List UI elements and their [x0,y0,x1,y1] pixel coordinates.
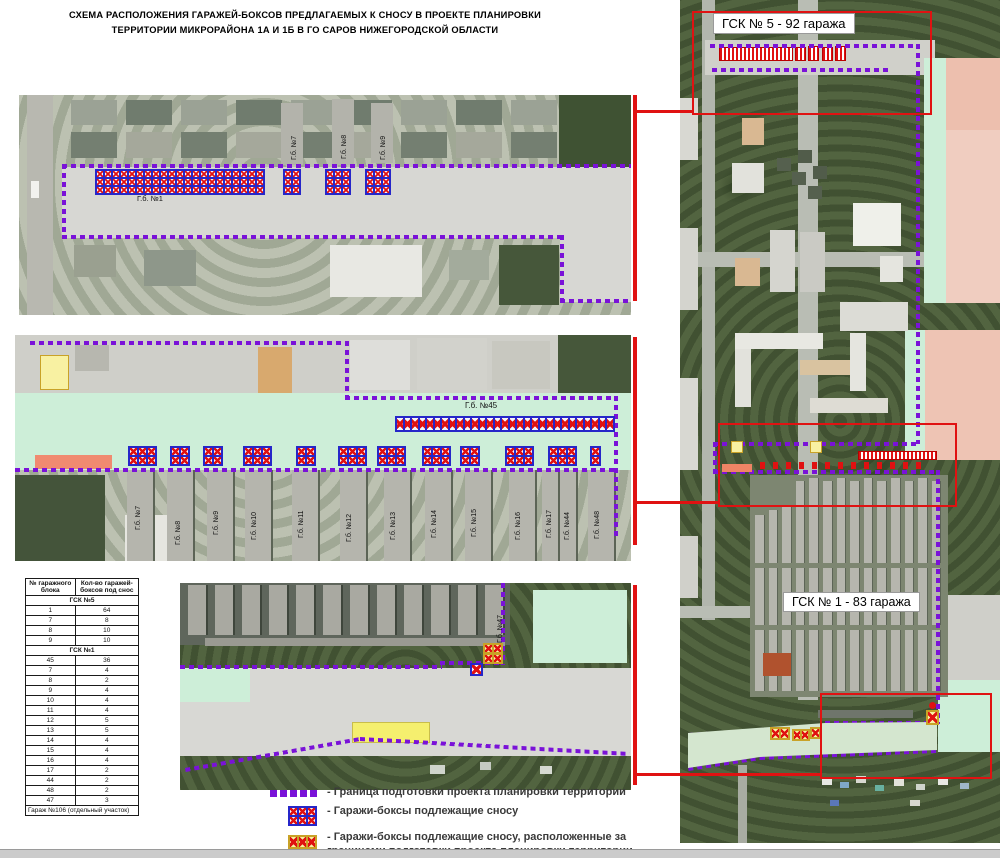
garage-box-cell [128,170,136,178]
forest-patch [15,475,105,561]
building [732,163,764,193]
callout-connector-middle-horizontal [637,501,719,504]
building [511,100,557,125]
building [875,785,884,791]
building [480,762,491,770]
garage-box-cell [176,186,184,194]
garage-box-cell [248,170,256,178]
garage-boxes-demolish [325,169,351,195]
legend-swatch-boundary [243,786,327,797]
garage-box-cell [160,186,168,194]
building [840,302,908,331]
callout-connector-top-horizontal [637,110,693,113]
garage-box-cell [567,456,576,465]
title-line-1: СХЕМА РАСПОЛОЖЕНИЯ ГАРАЖЕЙ-БОКСОВ ПРЕДЛА… [20,10,590,20]
garage-box-cell [240,178,248,186]
garage-box-cell [441,447,450,456]
boundary-dashed-line [345,341,349,396]
garage-box-cell [200,170,208,178]
garage-boxes-demolish [505,446,534,466]
lane [750,625,948,630]
garage-box-cell [811,728,820,738]
garage-block-label: Г.б. №9 [213,511,220,535]
garage-boxes-outside-boundary [288,835,317,849]
boundary-dashed-line [180,665,442,669]
building [680,228,698,310]
garage-block-building [377,585,397,635]
garage-block-building [245,470,273,561]
garage-box-cell [298,816,307,825]
table-cell: 1 [26,606,76,616]
garage-box-cell [200,186,208,194]
building [770,230,795,292]
garage-box-cell [297,456,306,465]
building [126,100,172,125]
building [449,250,489,280]
garage-box-cell [184,170,192,178]
table-cell: 10 [75,626,138,636]
garage-box-cell [411,417,419,431]
boundary-dashed-line [713,442,717,472]
garage-box-cell [129,447,138,456]
garage-block-building [465,470,493,561]
garage-block-building [269,585,289,635]
table-cell: 2 [75,786,138,796]
legend-swatch-demolish [243,805,327,826]
garage-box-cell [461,456,470,465]
garage-box-cell [591,456,600,465]
table-cell: 2 [75,776,138,786]
garage-boxes-demolish [590,446,601,466]
garage-box-cell [96,186,104,194]
building [492,341,550,389]
table-cell: 2 [75,676,138,686]
garage-box-cell [591,447,600,456]
garage-box-cell [160,170,168,178]
garage-box-cell [213,456,222,465]
planned-zone-salmon [946,58,1000,130]
garage-box-cell [524,447,533,456]
garage-block-label: Г.б. №7 [291,136,298,160]
garage-box-cell [366,186,374,194]
garage-box-cell [348,456,357,465]
table-cell: 14 [26,736,76,746]
forest-patch [559,95,631,170]
garage-block-building [350,585,370,635]
garage-block-label: Г.б. №12 [346,514,353,542]
table-cell: 3 [75,796,138,806]
table-cell: ГСК №1 [26,646,139,656]
garage-box-cell [253,447,262,456]
building [126,132,172,158]
legend-item-text: - Граница подготовки проекта планировки … [327,786,657,800]
garage-box-cell [192,178,200,186]
garage-box-cell [216,178,224,186]
garage-box-cell [426,417,434,431]
garage-box-cell [334,178,342,186]
garage-box-cell [441,456,450,465]
garage-box-cell [144,170,152,178]
garage-box-cell [366,170,374,178]
garage-block-label: Г.б. №16 [515,512,522,540]
garage-box-cell [404,417,412,431]
garage-box-cell [387,456,396,465]
boundary-dash-sample [270,790,277,797]
garage-box-cell [461,447,470,456]
building [830,800,839,806]
building [680,536,698,598]
table-cell: Гараж №106 (отдельный участок) [26,806,139,816]
garage-box-cell [152,170,160,178]
boundary-dash-sample [300,790,307,797]
garage-box-cell [524,456,533,465]
garage-block-label: Г.б. №17 [546,510,553,538]
garage-box-cell [120,170,128,178]
garage-box-cell [171,447,180,456]
building [456,100,502,125]
boundary-dashed-line [614,396,618,540]
building [19,245,59,315]
forest-patch [558,335,631,395]
garage-box-cell [506,447,515,456]
garage-box-cell [248,186,256,194]
boundary-dashed-line [15,468,614,472]
garage-box-cell [423,456,432,465]
garage-box-cell [297,447,306,456]
building [417,338,487,390]
garage-box-cell [104,186,112,194]
garage-box-cell [334,186,342,194]
legend: - Граница подготовки проекта планировки … [243,786,673,858]
garage-box-cell [307,836,316,848]
title-line-2: ТЕРРИТОРИИ МИКРОРАЙОНА 1А И 1Б В ГО САРО… [20,25,590,35]
garage-block-building [425,470,453,561]
building [840,782,849,788]
garage-boxes-demolish [170,446,190,466]
garage-block-building [588,470,616,561]
project-area-fill [560,238,631,302]
building [792,172,806,185]
garage-box-cell [342,186,350,194]
garage-box-cell [176,178,184,186]
garage-boxes-demolish [338,446,367,466]
garage-box-cell [168,170,176,178]
garage-box-cell [240,186,248,194]
garage-box-cell [326,170,334,178]
garage-box-cell [213,447,222,456]
garage-box-cell [470,447,479,456]
garage-box-cell [423,447,432,456]
garage-box-cell [216,170,224,178]
garage-box-cell [192,186,200,194]
garage-boxes-demolish [460,446,480,466]
garage-count-table: № гаражного блокаКол-во гаражей-боксов п… [25,578,139,816]
table-cell: 4 [75,666,138,676]
garage-box-cell [441,417,449,431]
garage-box-cell [471,664,482,675]
garage-boxes-outside-boundary [483,653,503,664]
garage-box-cell [284,170,292,178]
table-cell: 11 [26,706,76,716]
planned-zone-salmon [35,455,112,469]
table-cell: 5 [75,716,138,726]
garage-box-cell [180,447,189,456]
garage-boxes-demolish [470,663,483,676]
garage-boxes-demolish [395,416,615,432]
garage-box-cell [531,417,539,431]
garage-box-cell [599,417,607,431]
garage-box-cell [112,170,120,178]
garage-box-cell [374,170,382,178]
garage-box-cell [539,417,547,431]
garage-boxes-demolish [548,446,577,466]
garage-box-cell [464,417,472,431]
garage-box-cell [306,447,315,456]
garage-box-cell [244,456,253,465]
building [456,132,502,158]
table-cell: 4 [75,746,138,756]
garage-box-cell [104,178,112,186]
building [144,250,196,286]
garage-box-cell [128,178,136,186]
garage-box-cell [248,178,256,186]
garage-box-cell [494,417,502,431]
satellite-panel-middle-left: Г.б. №45Г.б. №7Г.б. №8Г.б. №9Г.б. №10Г.б… [15,335,631,561]
garage-box-cell [289,816,298,825]
garage-box-cell [292,170,300,178]
garage-box-cell [298,807,307,816]
garage-block-building [296,585,316,635]
garage-block-building [404,585,424,635]
garage-box-cell [112,178,120,186]
satellite-panel-bottom-middle: Г.б. №47 [180,583,631,790]
boundary-dashed-line [30,341,345,345]
table-cell: 44 [26,776,76,786]
building [735,333,823,349]
garage-box-cell [334,170,342,178]
garage-block-building [850,481,860,691]
building [894,779,904,786]
wall [205,638,505,646]
vehicle [31,181,39,198]
table-cell: 10 [26,696,76,706]
garage-box-cell [801,730,809,740]
garage-box-cell [471,417,479,431]
page-title: СХЕМА РАСПОЛОЖЕНИЯ ГАРАЖЕЙ-БОКСОВ ПРЕДЛА… [20,10,590,35]
garage-box-cell [284,178,292,186]
callout-connector-top-vertical [633,95,637,301]
table-cell: 5 [75,726,138,736]
garage-boxes-demolish [377,446,406,466]
garage-boxes-demolish [296,446,316,466]
building [350,340,410,390]
table-cell: 10 [75,636,138,646]
garage-box-cell [584,417,592,431]
table-cell: ГСК №5 [26,596,139,606]
garage-box-cell [152,186,160,194]
garage-boxes-demolish [365,169,391,195]
garage-block-building [215,585,235,635]
garage-box-cell [128,186,136,194]
table-cell: 15 [26,746,76,756]
garage-block-building [509,470,537,561]
building [810,398,888,413]
garage-box-cell [793,730,801,740]
garage-block-label: Г.б. №47 [497,615,504,643]
table-cell: 17 [26,766,76,776]
garage-block-label: Г.б. №10 [251,512,258,540]
building [960,783,969,789]
garage-box-cell [396,447,405,456]
table-cell: 45 [26,656,76,666]
building [430,765,445,774]
garage-box-cell [484,654,493,663]
garage-box-cell [262,447,271,456]
garage-block-building [877,481,887,691]
table-cell: 9 [26,636,76,646]
garage-box-cell [591,417,599,431]
garage-box-cell [493,644,502,653]
garage-box-cell [184,186,192,194]
garage-box-cell [184,178,192,186]
building [401,100,447,125]
building [938,778,948,785]
garage-box-cell [554,417,562,431]
garage-box-cell [449,417,457,431]
garage-box-cell [256,186,264,194]
callout-label-gsk1: ГСК № 1 - 83 гаража [783,592,920,612]
garage-block-label: Г.б. №45 [465,401,497,410]
table-cell: 8 [26,676,76,686]
garage-box-cell [136,178,144,186]
building [763,653,791,676]
garage-box-cell [256,170,264,178]
garage-box-cell [232,186,240,194]
garage-block-label: Г.б. №15 [471,509,478,537]
table-cell: 36 [75,656,138,666]
building [330,245,422,297]
garage-box-cell [339,456,348,465]
garage-boxes-demolish [128,446,157,466]
table-cell: 9 [26,686,76,696]
building [910,800,920,806]
building [735,349,751,407]
garage-box-cell [374,186,382,194]
building [511,132,557,158]
boundary-dashed-line [936,470,940,724]
garage-block-label: Г.б. №8 [175,521,182,545]
lane [750,563,948,568]
building [499,245,559,305]
table-cell: 4 [75,736,138,746]
garage-box-cell [348,447,357,456]
garage-box-cell [357,447,366,456]
scheme-page: СХЕМА РАСПОЛОЖЕНИЯ ГАРАЖЕЙ-БОКСОВ ПРЕДЛА… [0,0,1000,858]
garage-box-cell [120,178,128,186]
garage-box-cell [382,170,390,178]
boundary-dashed-line [560,299,631,303]
building [236,132,282,158]
garage-box-cell [434,417,442,431]
garage-box-cell [256,178,264,186]
garage-block-building [796,481,806,691]
garage-box-cell [216,186,224,194]
table-cell: 48 [26,786,76,796]
garage-box-cell [576,417,584,431]
garage-box-cell [204,456,213,465]
garage-box-cell [378,447,387,456]
garage-box-cell [306,456,315,465]
garage-box-cell [298,836,307,848]
garage-box-cell [144,178,152,186]
garage-box-cell [484,644,493,653]
table-cell: 4 [75,696,138,706]
garage-block-building [905,481,915,691]
garage-boxes-demolish [95,169,265,195]
garage-block-label: Г.б. №48 [594,511,601,539]
road [738,765,747,843]
garage-box-cell [419,417,427,431]
building [808,186,822,199]
garage-box-cell [506,456,515,465]
garage-box-cell [240,170,248,178]
garage-box-cell [479,417,487,431]
garage-box-cell [176,170,184,178]
callout-rect-bottom [820,693,992,779]
garage-box-cell [569,417,577,431]
garage-box-cell [136,186,144,194]
garage-box-cell [516,417,524,431]
planned-zone-green [180,668,250,702]
garage-block-building [242,585,262,635]
garage-box-cell [292,178,300,186]
table-cell: 8 [26,626,76,636]
garage-box-cell [567,447,576,456]
garage-box-cell [387,447,396,456]
garage-box-cell [244,447,253,456]
road-area [942,595,1000,680]
legend-item: - Гаражи-боксы подлежащие сносу [243,805,673,826]
garage-block-building [809,478,819,691]
table-cell: 7 [26,616,76,626]
table-cell: 4 [75,706,138,716]
garage-block-label: Г.б. №14 [431,510,438,538]
garage-box-cell [96,178,104,186]
garage-box-cell [160,178,168,186]
garage-block-building [292,470,320,561]
garage-box-cell [606,417,614,431]
building [680,378,698,470]
table-cell: 4 [75,686,138,696]
callout-connector-bottom-horizontal [637,773,821,776]
gsk1-complex [750,475,948,697]
garage-box-cell [144,186,152,194]
garage-block-label: Г.б. №1 [137,194,163,203]
building [777,158,791,171]
garage-block-label: Г.б. №13 [390,512,397,540]
callout-rect-middle [718,423,957,507]
building [181,100,227,125]
garage-box-cell [138,456,147,465]
boundary-dashed-line [560,235,564,302]
garage-box-cell [168,186,176,194]
building [880,256,903,282]
garage-box-cell [342,178,350,186]
garage-box-cell [396,456,405,465]
garage-block-building [323,585,343,635]
garage-block-building [918,478,928,691]
callout-connector-bottom-vertical [633,585,637,785]
